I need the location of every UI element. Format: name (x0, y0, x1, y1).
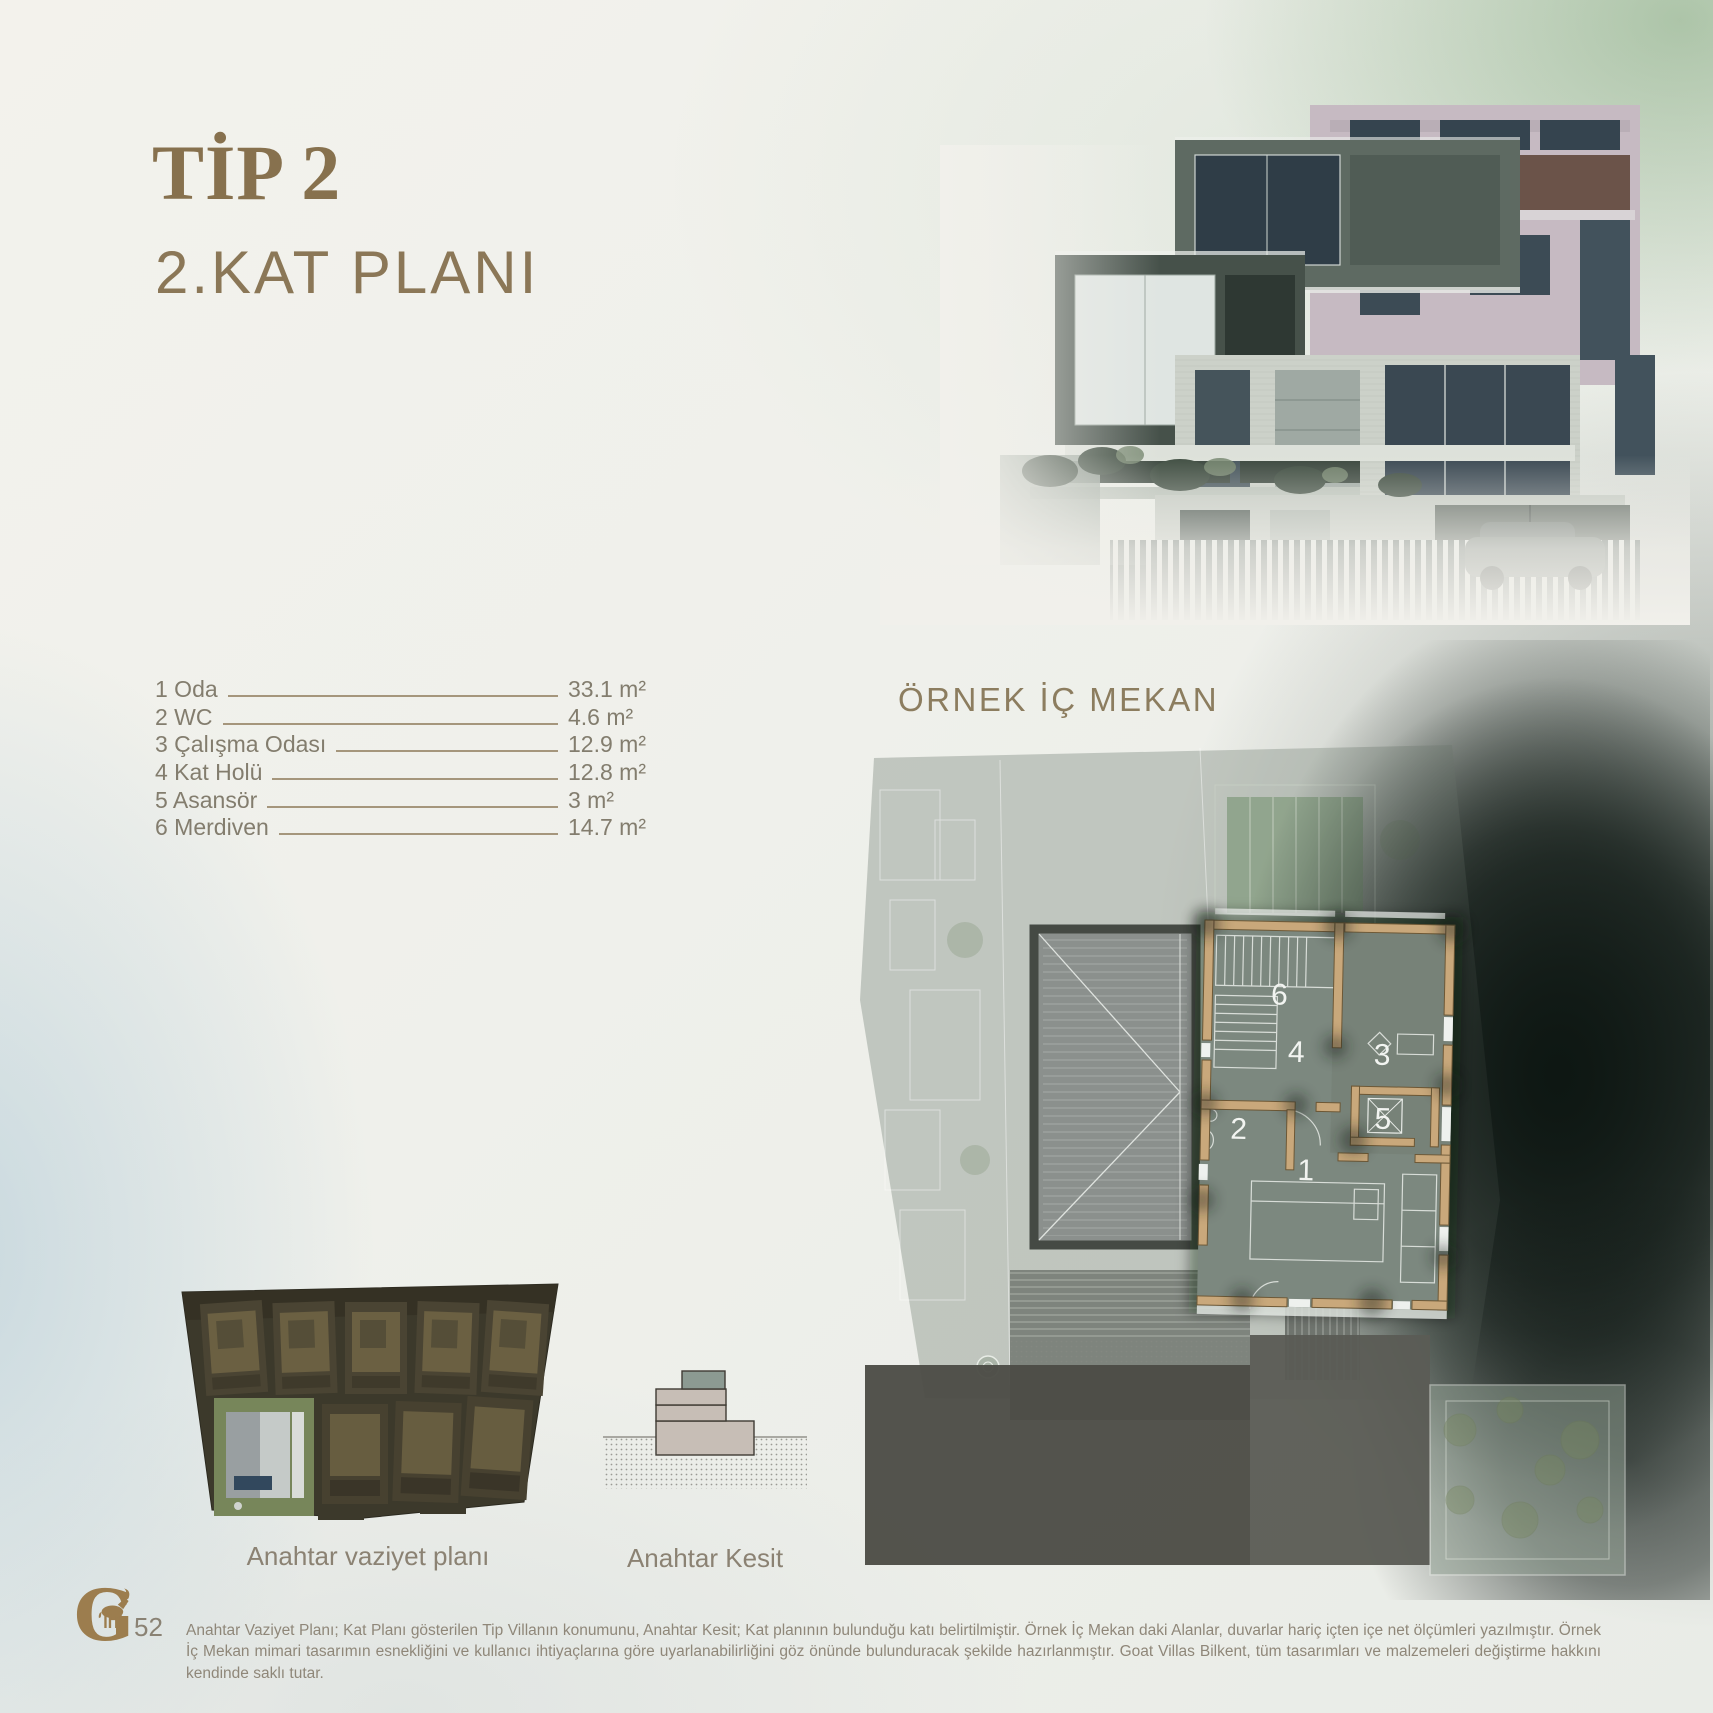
section-floors (656, 1371, 754, 1455)
room-row: 5 Asansör 3 m² (155, 787, 652, 815)
site-plan-caption: Anahtar vaziyet planı (168, 1541, 568, 1572)
room-label: 4 Kat Holü (155, 759, 262, 786)
room-row: 3 Çalışma Odası 12.9 m² (155, 731, 652, 759)
highlighted-floor-box (682, 1371, 725, 1389)
room-row: 2 WC 4.6 m² (155, 704, 652, 732)
site-villas-top-row (200, 1300, 549, 1396)
page-title: TİP 2 (152, 128, 341, 218)
room-number-4: 4 (1288, 1036, 1305, 1069)
room-label: 1 Oda (155, 676, 218, 703)
brochure-page: TİP 2 2.KAT PLANI (0, 0, 1713, 1713)
room-row: 6 Merdiven 14.7 m² (155, 814, 652, 842)
room-area: 33.1 m² (568, 676, 652, 703)
room-area: 3 m² (568, 787, 652, 814)
leader-line (223, 722, 559, 725)
svg-text:G: G (74, 1582, 134, 1657)
leader-line (272, 777, 558, 780)
room-area: 12.9 m² (568, 731, 652, 758)
page-subtitle: 2.KAT PLANI (155, 238, 539, 307)
room-number-1: 1 (1297, 1154, 1314, 1187)
highlighted-floor-plan: 1 2 3 4 5 6 (1185, 908, 1466, 1320)
page-number: 52 (134, 1612, 163, 1643)
room-schedule: 1 Oda 33.1 m² 2 WC 4.6 m² 3 Çalışma Odas… (155, 676, 652, 842)
room-label: 3 Çalışma Odası (155, 731, 326, 758)
section-caption: Anahtar Kesit (595, 1543, 815, 1574)
leader-line (228, 694, 558, 697)
room-row: 4 Kat Holü 12.8 m² (155, 759, 652, 787)
room-area: 12.8 m² (568, 759, 652, 786)
site-villas-bottom-row (322, 1396, 533, 1504)
room-number-5: 5 (1374, 1103, 1391, 1136)
key-site-plan-image (168, 1276, 568, 1532)
key-section-diagram (595, 1363, 815, 1495)
floor-plan-image: 1 2 3 4 5 6 (760, 640, 1710, 1600)
leader-line (279, 832, 558, 835)
highlighted-villa (214, 1398, 314, 1516)
mist-fade-left (940, 145, 1160, 565)
room-row: 1 Oda 33.1 m² (155, 676, 652, 704)
room-area: 4.6 m² (568, 704, 652, 731)
room-number-2: 2 (1230, 1113, 1247, 1146)
room-number-6: 6 (1271, 978, 1288, 1011)
room-label: 5 Asansör (155, 787, 257, 814)
villa-render-image (880, 25, 1690, 625)
disclaimer-text: Anahtar Vaziyet Planı; Kat Planı gösteri… (186, 1620, 1601, 1684)
room-label: 6 Merdiven (155, 814, 269, 841)
garden-plan (1430, 1385, 1625, 1575)
leader-line (336, 749, 558, 752)
goat-logo-icon: G (74, 1582, 142, 1660)
room-number-3: 3 (1374, 1039, 1391, 1072)
room-area: 14.7 m² (568, 814, 652, 841)
room-label: 2 WC (155, 704, 213, 731)
leader-line (267, 805, 558, 808)
roof-plan (1034, 929, 1196, 1245)
